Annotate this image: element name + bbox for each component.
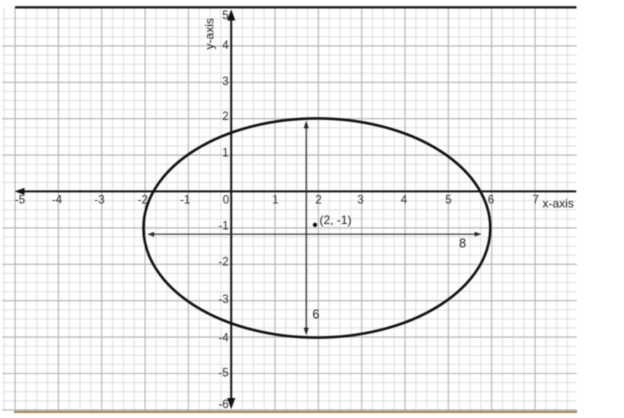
svg-text:-5: -5 (218, 368, 228, 380)
svg-text:1: 1 (272, 195, 278, 207)
svg-text:2: 2 (315, 195, 321, 207)
svg-text:1: 1 (222, 148, 228, 160)
svg-text:3: 3 (357, 195, 363, 207)
svg-text:-4: -4 (218, 333, 229, 345)
svg-text:5: 5 (222, 10, 228, 22)
svg-text:-2: -2 (138, 195, 148, 207)
svg-text:-5: -5 (15, 195, 25, 207)
svg-text:(2, -1): (2, -1) (320, 213, 352, 227)
svg-text:-3: -3 (94, 195, 104, 207)
svg-text:-4: -4 (52, 195, 63, 207)
svg-text:-3: -3 (218, 294, 228, 306)
svg-text:7: 7 (532, 195, 538, 207)
svg-text:y-axis: y-axis (203, 18, 217, 49)
svg-text:-1: -1 (218, 221, 228, 233)
svg-text:4: 4 (401, 195, 408, 207)
svg-text:6: 6 (312, 308, 319, 322)
svg-text:6: 6 (488, 195, 494, 207)
svg-text:x-axis: x-axis (543, 197, 574, 211)
svg-text:8: 8 (459, 236, 466, 250)
svg-text:-6: -6 (218, 399, 228, 411)
svg-text:4: 4 (222, 40, 229, 52)
svg-text:3: 3 (222, 76, 228, 88)
svg-text:2: 2 (222, 111, 228, 123)
svg-text:-2: -2 (218, 257, 228, 269)
svg-text:0: 0 (223, 195, 229, 207)
svg-text:-1: -1 (180, 195, 190, 207)
svg-text:5: 5 (445, 195, 451, 207)
